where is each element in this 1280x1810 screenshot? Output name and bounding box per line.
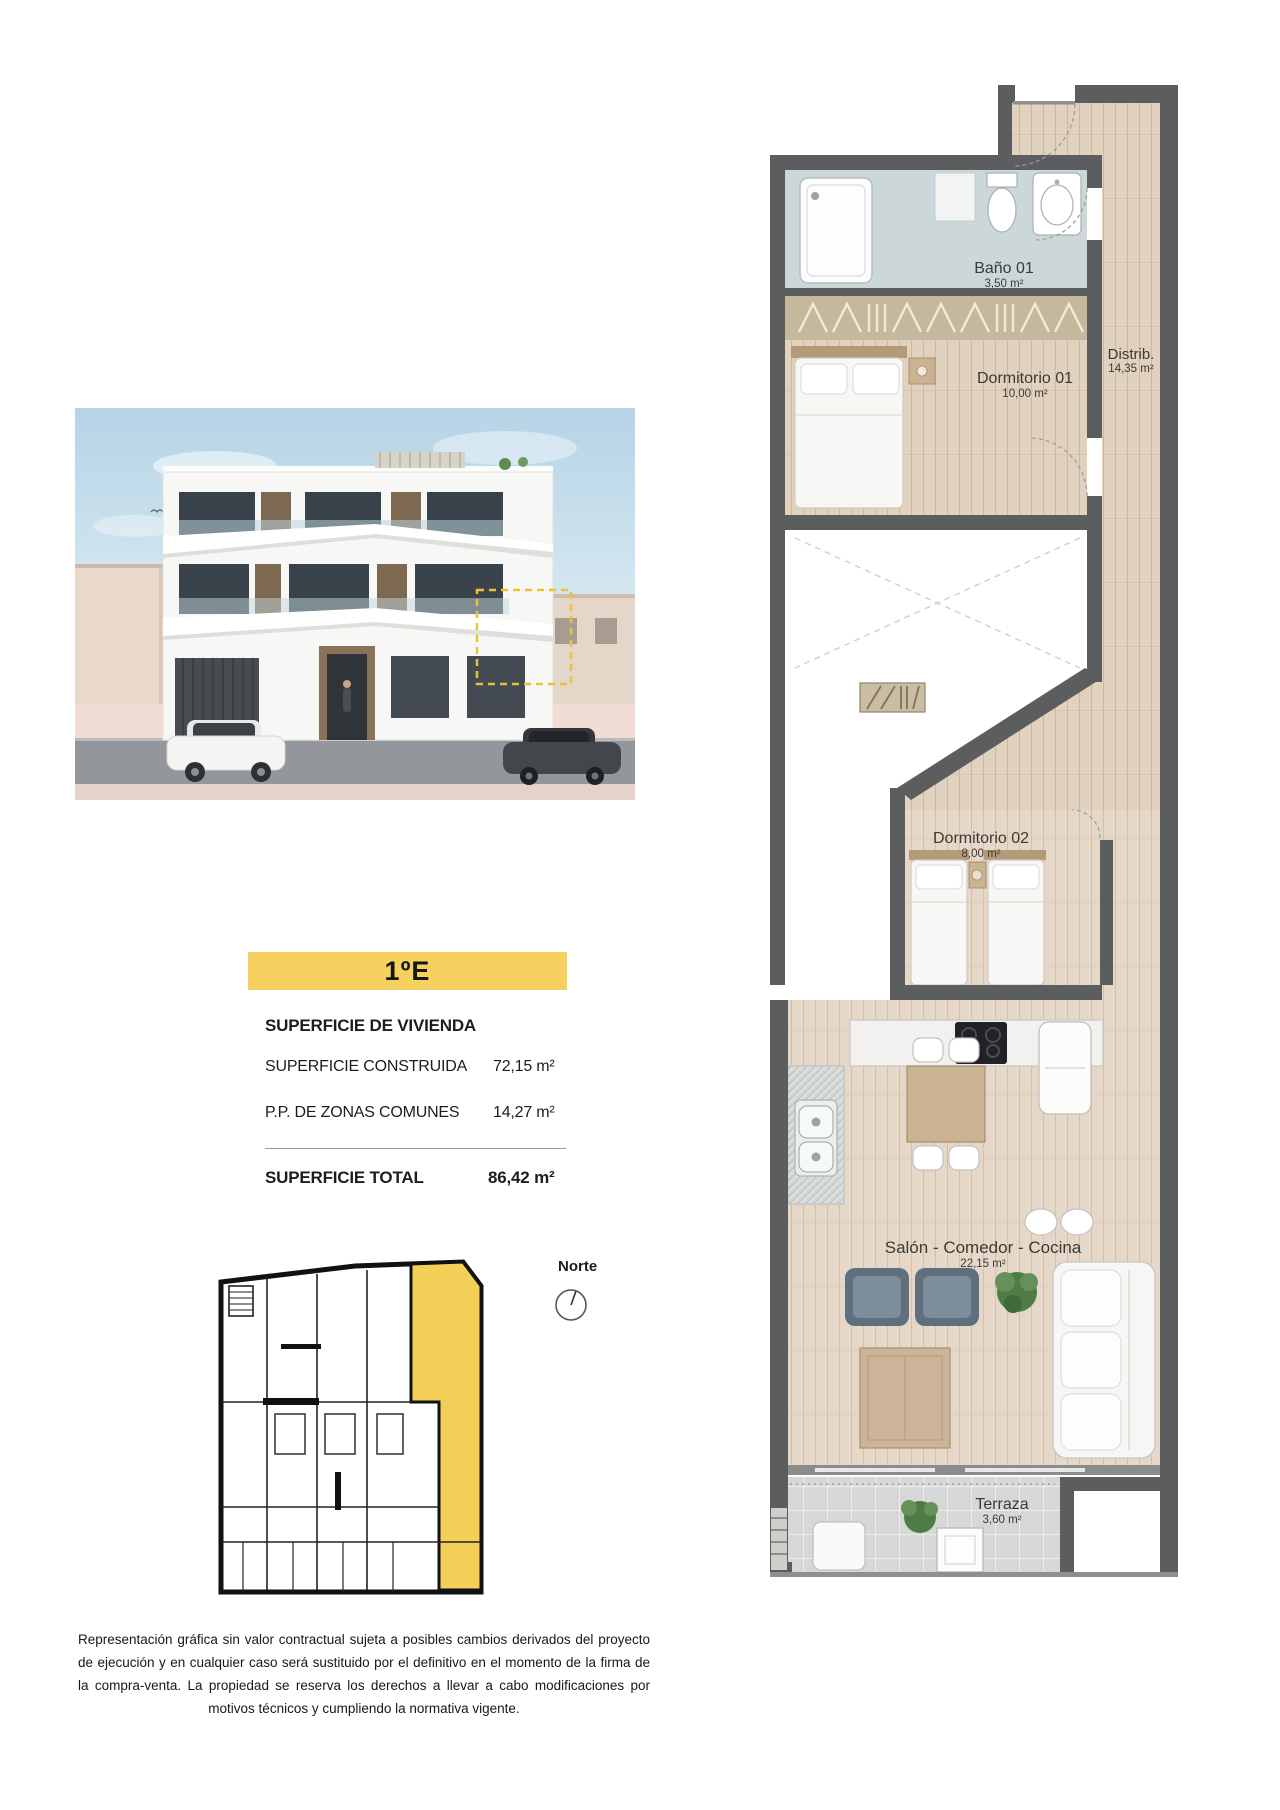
single-bed xyxy=(909,850,969,985)
room-label-distributor: Distrib. 14,35 m² xyxy=(1108,346,1155,376)
entrance-door-leaf xyxy=(1013,101,1075,105)
brochure-page: 1ºE SUPERFICIE DE VIVIENDA SUPERFICIE CO… xyxy=(0,0,1280,1810)
building-render-illustration xyxy=(75,408,635,800)
person-silhouette xyxy=(343,688,351,712)
nightstand xyxy=(909,358,935,384)
double-bed xyxy=(791,346,907,508)
surface-row-value: 72,15 m² xyxy=(493,1058,555,1076)
armchair xyxy=(845,1268,909,1326)
mini-plan-drawing xyxy=(205,1252,495,1607)
room-label-terrace: Terraza 3,60 m² xyxy=(975,1496,1028,1528)
neighbor-terrace-void xyxy=(1074,1491,1160,1572)
surface-row-label: SUPERFICIE CONSTRUIDA xyxy=(265,1058,467,1076)
closet-hatch-icon xyxy=(860,683,925,712)
single-bed xyxy=(984,850,1046,985)
room-label-bathroom: Baño 01 3,50 m² xyxy=(974,260,1034,292)
floor-plan: Baño 01 3,50 m² Dormitorio 01 10,00 m² D… xyxy=(755,70,1185,1580)
washbasin xyxy=(1033,173,1081,235)
bathroom-cabinet xyxy=(935,173,975,221)
kitchen-sink xyxy=(795,1100,837,1176)
north-compass-icon xyxy=(548,1279,594,1325)
surface-total-label: SUPERFICIE TOTAL xyxy=(265,1168,424,1188)
room-label-bedroom1: Dormitorio 01 10,00 m² xyxy=(977,370,1073,402)
shower-tray xyxy=(800,178,872,283)
pouf xyxy=(1025,1209,1057,1235)
room-label-living: Salón - Comedor - Cocina 22,15 m² xyxy=(885,1238,1082,1271)
surface-total-value: 86,42 m² xyxy=(488,1168,554,1188)
legal-disclaimer: Representación gráfica sin valor contrac… xyxy=(78,1628,650,1720)
room-label-bedroom2: Dormitorio 02 8,00 m² xyxy=(933,830,1029,862)
armchair xyxy=(915,1268,979,1326)
coffee-table xyxy=(860,1348,950,1448)
north-compass: Norte xyxy=(548,1258,638,1358)
nightstand xyxy=(969,862,986,888)
surface-row-value: 14,27 m² xyxy=(493,1104,555,1122)
corridor-floor xyxy=(1102,173,1160,682)
toilet xyxy=(987,173,1017,232)
sofa xyxy=(1053,1262,1155,1458)
mini-location-plan xyxy=(205,1252,495,1607)
unit-label: 1ºE xyxy=(385,956,431,987)
surface-divider xyxy=(265,1148,566,1149)
compass-label: Norte xyxy=(558,1258,638,1275)
surface-heading: SUPERFICIE DE VIVIENDA xyxy=(265,1016,476,1036)
floor-plan-drawing xyxy=(755,70,1185,1580)
pouf xyxy=(1061,1209,1093,1235)
surface-block: SUPERFICIE DE VIVIENDA SUPERFICIE CONSTR… xyxy=(265,1016,567,1206)
terrace-chair xyxy=(813,1522,865,1570)
terrace-table xyxy=(937,1528,983,1572)
building-render xyxy=(75,408,635,800)
terrace-ladder-icon xyxy=(771,1508,787,1570)
surface-row-label: P.P. DE ZONAS COMUNES xyxy=(265,1104,459,1122)
unit-banner: 1ºE xyxy=(248,952,567,990)
